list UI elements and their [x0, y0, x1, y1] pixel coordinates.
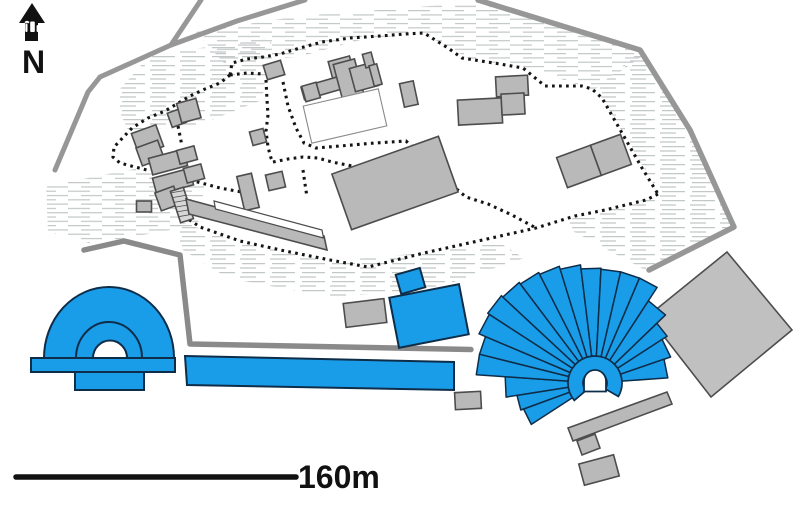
svg-text:N: N [22, 44, 45, 80]
svg-text:160m: 160m [298, 459, 380, 495]
